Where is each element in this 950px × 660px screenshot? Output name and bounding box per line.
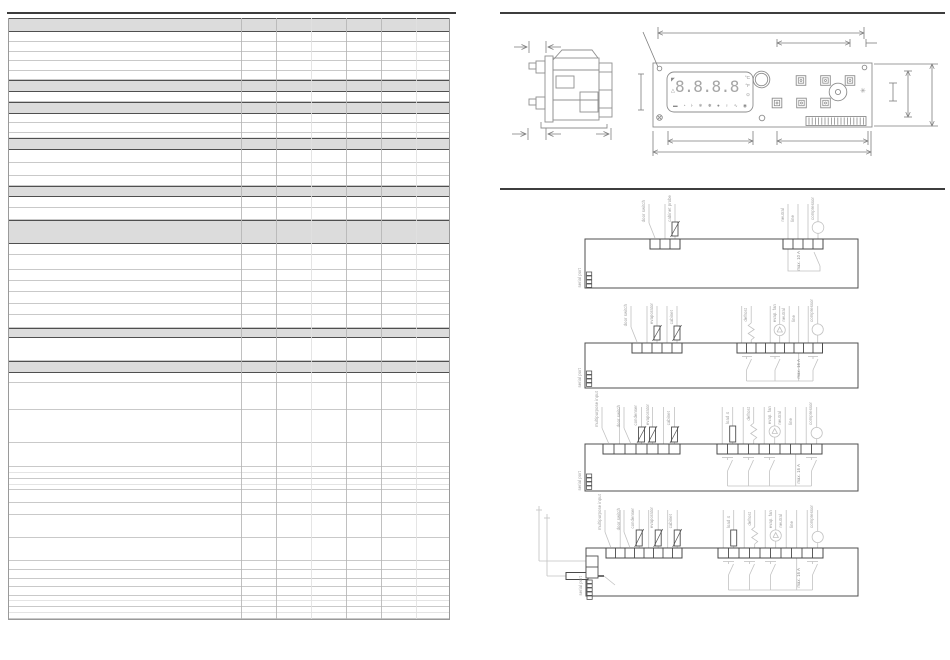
wire-label: condenser [634,405,638,425]
snowflake-icon: ✳ [860,88,866,95]
light-icon: ♀ [725,104,728,109]
wire-label: multipurpose input [598,494,602,530]
setpoint-icon: ▬ [673,104,678,109]
defrost-corner-icon: ◤ [671,78,675,83]
wire-label: evap. fan [773,304,777,322]
wire-label: neutral [782,308,786,322]
load-symbol [731,530,737,546]
standby-icon: ◉ [743,104,747,109]
defrost-icon: ❄ [699,104,703,109]
compressor-icon: ● [717,104,720,109]
aux-icon: ⊦ [691,104,693,109]
wire-label: cabinet [670,310,674,324]
wire-label: evaporator [650,303,654,324]
wire-label: evaporator [650,507,654,528]
wire-label: multipurpose input [595,391,599,427]
fan-icon: ❅ [708,104,712,109]
wire-label: line [789,418,793,425]
wire-label: condenser [631,508,635,528]
wire-label: door switch [642,200,646,222]
wire-label: evap. fan [768,406,772,424]
relay-contact-symbol [604,576,615,585]
clock-icon: ⊙ [746,93,750,98]
wire-label: compressor [810,299,814,322]
compressor-motor-symbol [811,427,822,438]
wire-label: line [790,521,794,528]
fuse-rating-label: max. 16 A [797,464,801,484]
wire-label: neutral [781,208,785,222]
fan-motor-symbol [774,324,785,335]
side-view-drawing [512,41,612,140]
wire-label: evap. fan [769,510,773,528]
defrost-heater-symbol [752,527,758,544]
fahrenheit-label: °F [745,84,750,89]
external-component-symbol [566,573,588,580]
speaker-icon [829,83,847,101]
fuse-rating-label: max. 16 A [797,359,801,379]
wire-label: door switch [617,405,621,427]
terminal-blocks [603,239,823,558]
fuse-rating-label: max. 16 A [797,568,801,588]
serial-port-connectors [587,272,593,599]
fan-motor-symbol [769,426,780,437]
datasheet-page: 8.8.8.8 °C °F ⊙ ◤ △ ▬◔⊦❄❅●♀∿◉ ✳ door swi… [0,0,950,660]
wire-label: compressor [810,505,814,528]
serial-port-label: serial port [579,576,583,596]
serial-port-label: serial port [578,471,582,491]
wire-label: defrost [747,407,751,421]
load-symbol [730,426,736,442]
wire-label: load 4 [727,516,731,528]
wire-label: defrost [744,308,748,322]
display-status-icons: ▬◔⊦❄❅●♀∿◉ [673,104,747,109]
wire-label: cabinet [669,514,673,528]
fan-motor-symbol [770,530,781,541]
wire-label: cabinet [667,411,671,425]
clock-icon: ◔ [683,104,686,109]
compressor-motor-symbol [812,531,823,542]
alarm-icon: △ [671,89,675,94]
wire-label: door switch [617,508,621,530]
wire-label: evaporator [646,404,650,425]
defrost-heater-symbol [748,323,754,340]
wire-label: neutral [779,514,783,528]
wire-label: line [791,215,795,222]
segment-display: 8.8.8.8 °C °F ⊙ ◤ △ ▬◔⊦❄❅●♀∿◉ [668,73,752,111]
compressor-motor-symbol [812,222,824,234]
relay-contact-symbol [814,252,820,266]
wire-label: compressor [811,197,815,220]
compressor-motor-symbol [812,324,823,335]
wire-label: defrost [748,512,752,526]
fuse-rating-label: max. 10 A [797,251,801,271]
tact-buttons [772,76,855,108]
display-digits: 8.8.8.8 [675,77,739,96]
wire-label: compressor [809,402,813,425]
wire-label: cabinet probe [668,195,672,222]
energy-icon: ∿ [734,104,738,109]
technical-drawings [0,0,950,660]
serial-port-label: serial port [578,268,582,288]
wire-label: load 4 [726,412,730,424]
celsius-label: °C [745,76,750,81]
serial-port-label: serial port [578,368,582,388]
defrost-heater-symbol [751,423,757,440]
wire-label: line [792,315,796,322]
wire-label: neutral [778,411,782,425]
wire-label: door switch [624,304,628,326]
